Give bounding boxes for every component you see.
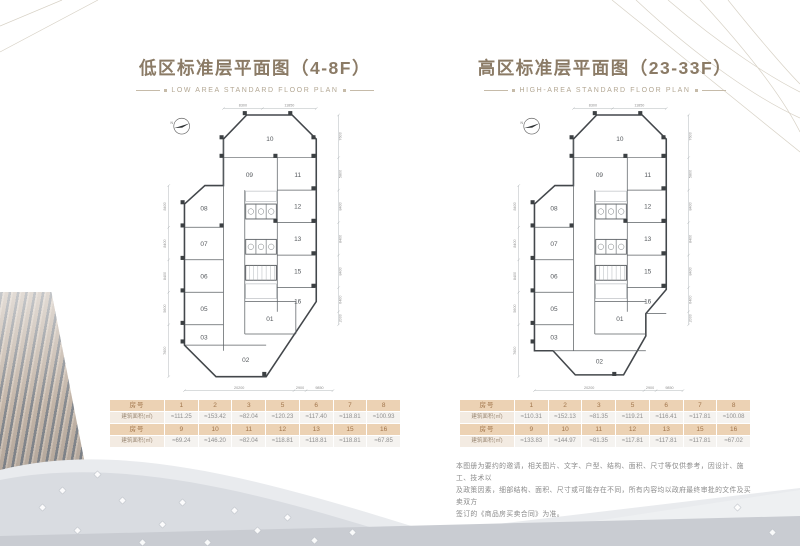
ornament-dot bbox=[343, 89, 346, 92]
floor-plan-svg: N100911081207130615051603010276005800840… bbox=[489, 102, 721, 399]
svg-text:8400: 8400 bbox=[513, 202, 517, 210]
table-cell: 6 bbox=[300, 400, 333, 411]
table-row: 房号9101112131516 bbox=[460, 424, 750, 435]
svg-text:5800: 5800 bbox=[688, 170, 692, 178]
ornament-line bbox=[136, 90, 160, 91]
north-label: N bbox=[171, 121, 174, 125]
stair-core bbox=[596, 191, 627, 299]
table-header-cell: 建筑面积(㎡) bbox=[110, 412, 164, 423]
table-cell: ≈117.81 bbox=[616, 436, 649, 447]
table-cell: 10 bbox=[549, 424, 582, 435]
low-area-title: 低区标准层平面图（4-8F） bbox=[100, 55, 410, 80]
room-label: 03 bbox=[550, 335, 558, 342]
svg-text:8300: 8300 bbox=[589, 104, 597, 108]
svg-text:9850: 9850 bbox=[315, 386, 323, 390]
table-row: 建筑面积(㎡)≈110.31≈152.13≈81.35≈119.21≈116.4… bbox=[460, 412, 750, 423]
ornament-line bbox=[702, 90, 726, 91]
table-cell: ≈117.81 bbox=[684, 436, 717, 447]
low-area-unit-table: 房号1235678建筑面积(㎡)≈111.25≈153.42≈82.04≈120… bbox=[110, 400, 400, 447]
table-cell: ≈67.02 bbox=[717, 436, 750, 447]
dimension-labels: 7600580084008400840064002000840084008400… bbox=[163, 104, 342, 390]
svg-text:9850: 9850 bbox=[665, 386, 673, 390]
room-label: 13 bbox=[294, 236, 302, 243]
table-row: 房号1235678 bbox=[460, 400, 750, 411]
room-labels: 1009110812071306150516030102 bbox=[550, 136, 651, 366]
svg-text:8400: 8400 bbox=[338, 202, 342, 210]
high-area-subtitle-text: HIGH-AREA STANDARD FLOOR PLAN bbox=[519, 87, 690, 94]
table-cell: 1 bbox=[165, 400, 198, 411]
table-cell: 12 bbox=[266, 424, 299, 435]
table-cell: 5 bbox=[616, 400, 649, 411]
room-label: 09 bbox=[246, 172, 254, 179]
svg-text:11850: 11850 bbox=[284, 104, 294, 108]
room-label: 05 bbox=[200, 306, 208, 313]
table-cell: 10 bbox=[199, 424, 232, 435]
table-cell: ≈116.41 bbox=[650, 412, 683, 423]
svg-text:5600: 5600 bbox=[513, 304, 517, 312]
table-cell: ≈152.13 bbox=[549, 412, 582, 423]
table-header-cell: 建筑面积(㎡) bbox=[460, 412, 514, 423]
table-cell: ≈117.40 bbox=[300, 412, 333, 423]
low-area-panel: 低区标准层平面图（4-8F） LOW AREA STANDARD FLOOR P… bbox=[100, 55, 410, 448]
svg-text:2900: 2900 bbox=[296, 386, 304, 390]
table-header-cell: 房号 bbox=[460, 424, 514, 435]
table-cell: ≈81.35 bbox=[582, 436, 615, 447]
room-label: 06 bbox=[200, 273, 208, 280]
table-row: 建筑面积(㎡)≈133.83≈144.97≈81.35≈117.81≈117.8… bbox=[460, 436, 750, 447]
svg-text:8400: 8400 bbox=[513, 272, 517, 280]
ornament-dot bbox=[164, 89, 167, 92]
disclaimer-line: 本图册为要约的邀请，相关图片、文字、户型、结构、面积、尺寸等仅供参考，因设计、施… bbox=[456, 461, 754, 485]
table-cell: ≈119.21 bbox=[616, 412, 649, 423]
table-row: 房号9101112131516 bbox=[110, 424, 400, 435]
room-label: 13 bbox=[644, 236, 652, 243]
table-cell: 8 bbox=[367, 400, 400, 411]
high-area-unit-table: 房号1235678建筑面积(㎡)≈110.31≈152.13≈81.35≈119… bbox=[460, 400, 750, 447]
table-cell: ≈118.81 bbox=[300, 436, 333, 447]
table-cell: 1 bbox=[515, 400, 548, 411]
table-header-cell: 房号 bbox=[110, 400, 164, 411]
svg-text:20200: 20200 bbox=[584, 386, 594, 390]
table-cell: 15 bbox=[684, 424, 717, 435]
table-cell: ≈100.93 bbox=[367, 412, 400, 423]
svg-text:2900: 2900 bbox=[646, 386, 654, 390]
table-cell: 2 bbox=[549, 400, 582, 411]
table-cell: ≈111.25 bbox=[165, 412, 198, 423]
table-row: 房号1235678 bbox=[110, 400, 400, 411]
room-label: 02 bbox=[242, 357, 250, 364]
high-area-panel: 高区标准层平面图（23-33F） HIGH-AREA STANDARD FLOO… bbox=[450, 55, 760, 520]
table-cell: 2 bbox=[199, 400, 232, 411]
disclaimer: 本图册为要约的邀请，相关图片、文字、户型、结构、面积、尺寸等仅供参考，因设计、施… bbox=[456, 461, 754, 520]
svg-text:6400: 6400 bbox=[688, 296, 692, 304]
ornament-line bbox=[350, 90, 374, 91]
table-cell: 6 bbox=[650, 400, 683, 411]
table-row: 建筑面积(㎡)≈69.24≈146.20≈82.04≈118.81≈118.81… bbox=[110, 436, 400, 447]
high-area-subtitle: HIGH-AREA STANDARD FLOOR PLAN bbox=[450, 87, 760, 94]
svg-text:2000: 2000 bbox=[688, 314, 692, 322]
room-labels: 1009110812071306150516030102 bbox=[200, 136, 301, 364]
svg-text:20200: 20200 bbox=[234, 386, 244, 390]
table-cell: ≈81.35 bbox=[582, 412, 615, 423]
table-cell: ≈146.20 bbox=[199, 436, 232, 447]
table-cell: 9 bbox=[515, 424, 548, 435]
room-label: 06 bbox=[550, 273, 558, 280]
table-cell: ≈120.23 bbox=[266, 412, 299, 423]
svg-text:7600: 7600 bbox=[338, 132, 342, 140]
table-cell: ≈118.81 bbox=[266, 436, 299, 447]
low-area-subtitle: LOW AREA STANDARD FLOOR PLAN bbox=[100, 87, 410, 94]
room-label: 10 bbox=[266, 136, 274, 143]
svg-text:8400: 8400 bbox=[338, 267, 342, 275]
table-cell: ≈117.81 bbox=[650, 436, 683, 447]
high-area-floor-plan: N100911081207130615051603010276005800840… bbox=[450, 102, 760, 396]
svg-text:8400: 8400 bbox=[513, 239, 517, 247]
table-cell: 3 bbox=[232, 400, 265, 411]
svg-text:5600: 5600 bbox=[163, 304, 167, 312]
ornament-line bbox=[484, 90, 508, 91]
table-cell: ≈144.97 bbox=[549, 436, 582, 447]
table-cell: 7 bbox=[684, 400, 717, 411]
table-cell: 16 bbox=[367, 424, 400, 435]
table-cell: ≈153.42 bbox=[199, 412, 232, 423]
room-label: 16 bbox=[294, 298, 302, 305]
svg-text:8400: 8400 bbox=[163, 239, 167, 247]
svg-text:11850: 11850 bbox=[634, 104, 644, 108]
room-label: 01 bbox=[266, 316, 274, 323]
dimension-lines bbox=[167, 107, 339, 392]
table-cell: ≈118.81 bbox=[334, 412, 367, 423]
svg-text:7600: 7600 bbox=[163, 347, 167, 355]
table-cell: 12 bbox=[616, 424, 649, 435]
room-label: 10 bbox=[616, 136, 624, 143]
table-cell: ≈82.04 bbox=[232, 436, 265, 447]
disclaimer-line: 及政策因素，细部结构、面积、尺寸或可能存在不同，所有内容均以政府最终审批的文件及… bbox=[456, 485, 754, 509]
ornament-dot bbox=[695, 89, 698, 92]
room-label: 02 bbox=[596, 359, 604, 366]
dimension-labels: 7600580084008400840064002000840084008400… bbox=[513, 104, 692, 390]
table-cell: 11 bbox=[582, 424, 615, 435]
room-label: 07 bbox=[550, 241, 558, 248]
svg-text:8400: 8400 bbox=[688, 202, 692, 210]
room-label: 09 bbox=[596, 172, 604, 179]
table-cell: ≈82.04 bbox=[232, 412, 265, 423]
table-cell: 13 bbox=[300, 424, 333, 435]
table-header-cell: 房号 bbox=[110, 424, 164, 435]
table-header-cell: 房号 bbox=[460, 400, 514, 411]
room-label: 11 bbox=[644, 172, 651, 179]
svg-text:7600: 7600 bbox=[688, 132, 692, 140]
table-cell: 9 bbox=[165, 424, 198, 435]
table-header-cell: 建筑面积(㎡) bbox=[110, 436, 164, 447]
north-label: N bbox=[521, 121, 524, 125]
dimension-lines bbox=[517, 107, 689, 392]
table-cell: ≈110.31 bbox=[515, 412, 548, 423]
room-label: 15 bbox=[644, 269, 652, 276]
svg-text:6400: 6400 bbox=[338, 296, 342, 304]
room-label: 01 bbox=[616, 316, 624, 323]
ornament-dot bbox=[512, 89, 515, 92]
table-cell: 16 bbox=[717, 424, 750, 435]
svg-text:8400: 8400 bbox=[163, 272, 167, 280]
table-cell: ≈100.08 bbox=[717, 412, 750, 423]
table-cell: 8 bbox=[717, 400, 750, 411]
table-row: 建筑面积(㎡)≈111.25≈153.42≈82.04≈120.23≈117.4… bbox=[110, 412, 400, 423]
floor-plan-svg: N100911081207130615051603010276005800840… bbox=[139, 102, 371, 399]
room-label: 03 bbox=[200, 335, 208, 342]
table-cell: 15 bbox=[334, 424, 367, 435]
disclaimer-line: 签订的《商品房买卖合同》为准。 bbox=[456, 509, 754, 521]
svg-text:8400: 8400 bbox=[163, 202, 167, 210]
table-cell: 3 bbox=[582, 400, 615, 411]
svg-text:8400: 8400 bbox=[688, 267, 692, 275]
table-cell: ≈69.24 bbox=[165, 436, 198, 447]
room-label: 12 bbox=[644, 204, 652, 211]
svg-text:7600: 7600 bbox=[513, 347, 517, 355]
svg-text:8300: 8300 bbox=[239, 104, 247, 108]
room-label: 08 bbox=[550, 206, 558, 213]
room-label: 12 bbox=[294, 204, 302, 211]
room-label: 08 bbox=[200, 206, 208, 213]
svg-text:2000: 2000 bbox=[338, 314, 342, 322]
svg-text:8400: 8400 bbox=[688, 235, 692, 243]
table-cell: 13 bbox=[650, 424, 683, 435]
room-label: 15 bbox=[294, 269, 302, 276]
elevator-core bbox=[246, 204, 277, 254]
stair-core bbox=[246, 191, 277, 299]
north-arrow-icon: N bbox=[521, 118, 540, 134]
table-cell: ≈118.81 bbox=[334, 436, 367, 447]
table-header-cell: 建筑面积(㎡) bbox=[460, 436, 514, 447]
low-area-floor-plan: N100911081207130615051603010276005800840… bbox=[100, 102, 410, 396]
svg-text:8400: 8400 bbox=[338, 235, 342, 243]
table-cell: ≈67.85 bbox=[367, 436, 400, 447]
low-area-subtitle-text: LOW AREA STANDARD FLOOR PLAN bbox=[171, 87, 338, 94]
table-cell: 5 bbox=[266, 400, 299, 411]
table-cell: ≈133.83 bbox=[515, 436, 548, 447]
elevator-core bbox=[596, 204, 627, 254]
north-arrow-icon: N bbox=[171, 118, 190, 134]
room-label: 16 bbox=[644, 298, 652, 305]
room-label: 11 bbox=[294, 172, 301, 179]
room-label: 07 bbox=[200, 241, 208, 248]
table-cell: 7 bbox=[334, 400, 367, 411]
high-area-title: 高区标准层平面图（23-33F） bbox=[450, 55, 760, 80]
table-cell: 11 bbox=[232, 424, 265, 435]
table-cell: ≈117.81 bbox=[684, 412, 717, 423]
svg-text:5800: 5800 bbox=[338, 170, 342, 178]
room-label: 05 bbox=[550, 306, 558, 313]
